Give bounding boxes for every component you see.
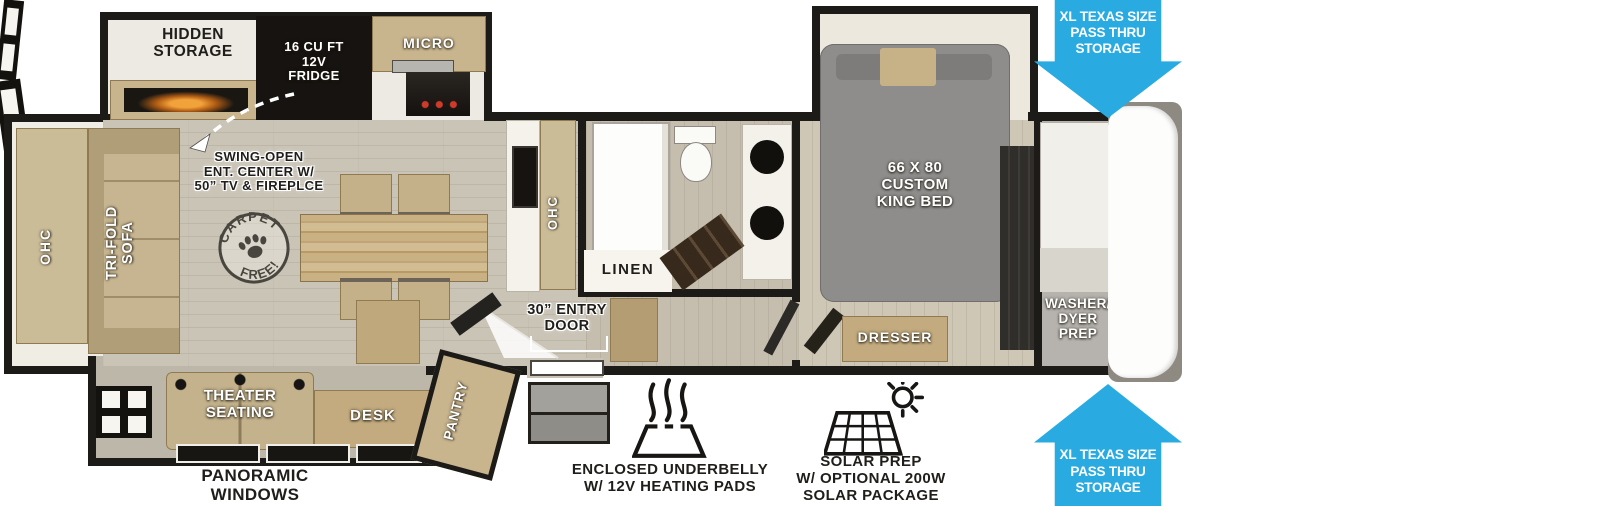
wall-bedroom-upper — [792, 112, 800, 302]
den-window-left — [96, 386, 152, 438]
desk-label: DESK — [314, 408, 432, 425]
kitchen-sink — [512, 146, 538, 208]
front-cap-interior — [1108, 106, 1178, 378]
panoramic-window — [176, 444, 260, 463]
pass-thru-storage-label-bottom: XL TEXAS SIZE PASS THRU STORAGE — [1060, 447, 1157, 506]
kitchen-ohc-label: OHC — [546, 180, 570, 246]
heating-pads-icon — [632, 374, 708, 460]
entry-door-dimension-bracket — [530, 336, 608, 352]
shower — [592, 122, 670, 260]
entry-door-label: 30” ENTRY DOOR — [505, 302, 629, 334]
sofa-label: TRI-FOLD SOFA — [104, 190, 148, 295]
front-cap — [1108, 102, 1182, 382]
floorplan: HIDDEN STORAGE 16 CU FT 12V FRIDGE MICRO… — [0, 0, 1600, 511]
desk-hutch — [356, 300, 420, 364]
dinette-chair — [340, 174, 392, 216]
bedroom-window-left — [0, 0, 24, 81]
wall-bedroom-lower — [792, 360, 800, 375]
dinette-table — [300, 214, 488, 282]
panoramic-windows-label: PANORAMIC WINDOWS — [150, 466, 360, 504]
carpet-free-stamp: CARPET FREE! — [216, 210, 292, 286]
rear-ohc-label: OHC — [38, 206, 64, 286]
pass-thru-storage-arrow-top: XL TEXAS SIZE PASS THRU STORAGE — [1034, 0, 1182, 118]
pass-thru-storage-arrow-bottom: XL TEXAS SIZE PASS THRU STORAGE — [1034, 384, 1182, 506]
wardrobe — [1000, 146, 1034, 350]
theater-seating-label: THEATER SEATING — [166, 388, 314, 422]
vanity-sink — [750, 140, 784, 174]
entry-door-leaf — [530, 360, 604, 376]
entry-steps — [528, 382, 610, 444]
vanity-sink — [750, 206, 784, 240]
micro-label: MICRO — [374, 36, 484, 52]
solar-panel-icon — [824, 382, 924, 460]
front-closet-cabinets — [1040, 122, 1114, 292]
dresser-label: DRESSER — [842, 330, 948, 346]
pass-thru-storage-label-top: XL TEXAS SIZE PASS THRU STORAGE — [1060, 0, 1157, 58]
cooktop — [406, 72, 470, 116]
ent-center-label: SWING-OPEN ENT. CENTER W/ 50” TV & FIREP… — [176, 150, 342, 194]
hidden-storage-label: HIDDEN STORAGE — [118, 26, 268, 61]
linen-label: LINEN — [584, 262, 672, 279]
solar-prep-label: SOLAR PREP W/ OPTIONAL 200W SOLAR PACKAG… — [758, 454, 984, 504]
dinette-chair — [398, 174, 450, 216]
toilet — [680, 142, 712, 182]
swing-open-arrow-icon — [188, 88, 300, 154]
fridge-label: 16 CU FT 12V FRIDGE — [258, 40, 370, 84]
panoramic-window — [266, 444, 350, 463]
king-bed-label: 66 X 80 CUSTOM KING BED — [838, 160, 992, 210]
bed-runner — [880, 48, 936, 86]
